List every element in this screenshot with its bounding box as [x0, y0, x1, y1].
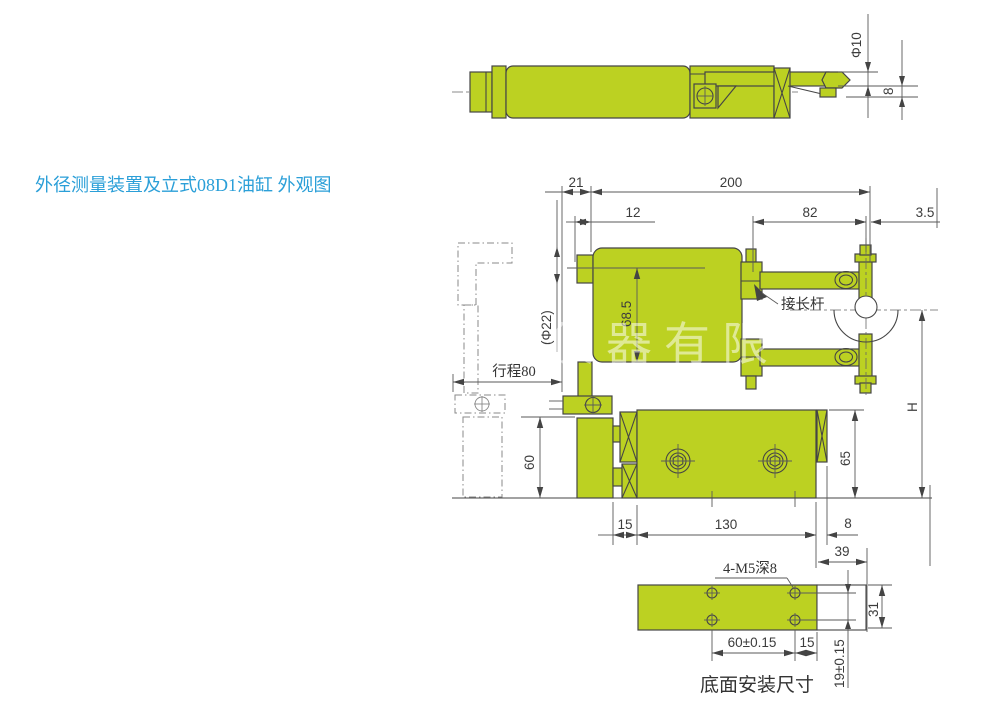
main-view: 接长杆	[452, 175, 940, 632]
carriage	[577, 418, 613, 498]
measuring-rod	[705, 72, 829, 86]
dim-3p5: 3.5	[916, 205, 935, 220]
dim-8-main: 8	[844, 516, 852, 531]
label-extension-rod: 接长杆	[781, 296, 825, 313]
dim-39: 39	[834, 544, 849, 559]
dim-60: 60	[522, 455, 537, 470]
cylinder-body	[506, 66, 690, 118]
contact-nut	[820, 88, 836, 97]
dim-21: 21	[568, 175, 583, 190]
dim-8-topview: 8	[881, 87, 896, 95]
block-left-tab	[577, 255, 593, 283]
dim-31: 31	[866, 602, 881, 617]
mounting-plate-extension	[817, 585, 866, 630]
dim-60-tolerance: 60±0.15	[728, 635, 777, 650]
top-view-cylinder: Φ10 8	[452, 14, 918, 120]
drawing-svg: Φ10 8	[0, 0, 1001, 706]
bottom-view-caption: 底面安装尺寸	[700, 674, 814, 696]
dim-130: 130	[715, 517, 738, 532]
dim-15-bottom: 15	[799, 635, 814, 650]
cylinder-end-cap	[470, 72, 492, 112]
cylinder-flange	[492, 66, 506, 118]
page-title: 外径测量装置及立式08D1油缸 外观图	[35, 174, 332, 195]
contact-ball	[855, 296, 877, 318]
main-dimensions: 21 200 12 82 3.5 68.5 (Φ22) 行程80	[453, 175, 940, 632]
dim-stroke-80: 行程80	[492, 363, 536, 380]
dim-phi10: Φ10	[849, 32, 864, 58]
dim-65: 65	[838, 451, 853, 466]
bottom-view: 4-M5深8 60±0.15 15 31 19±0.15 底面安装尺寸	[638, 560, 892, 696]
dim-82: 82	[802, 205, 817, 220]
drawing-page: Φ10 8	[0, 0, 1001, 706]
base-block	[637, 410, 816, 498]
contact-holder-lower	[859, 334, 872, 380]
watermark-text: 仪器有限	[548, 318, 780, 370]
dim-19-tolerance: 19±0.15	[832, 639, 847, 688]
dim-15-main: 15	[617, 517, 632, 532]
dim-200: 200	[720, 175, 743, 190]
contact-holder-upper	[859, 258, 872, 302]
label-4-m5-holes: 4-M5深8	[723, 560, 777, 577]
dim-12: 12	[625, 205, 640, 220]
dim-H: H	[905, 402, 920, 412]
